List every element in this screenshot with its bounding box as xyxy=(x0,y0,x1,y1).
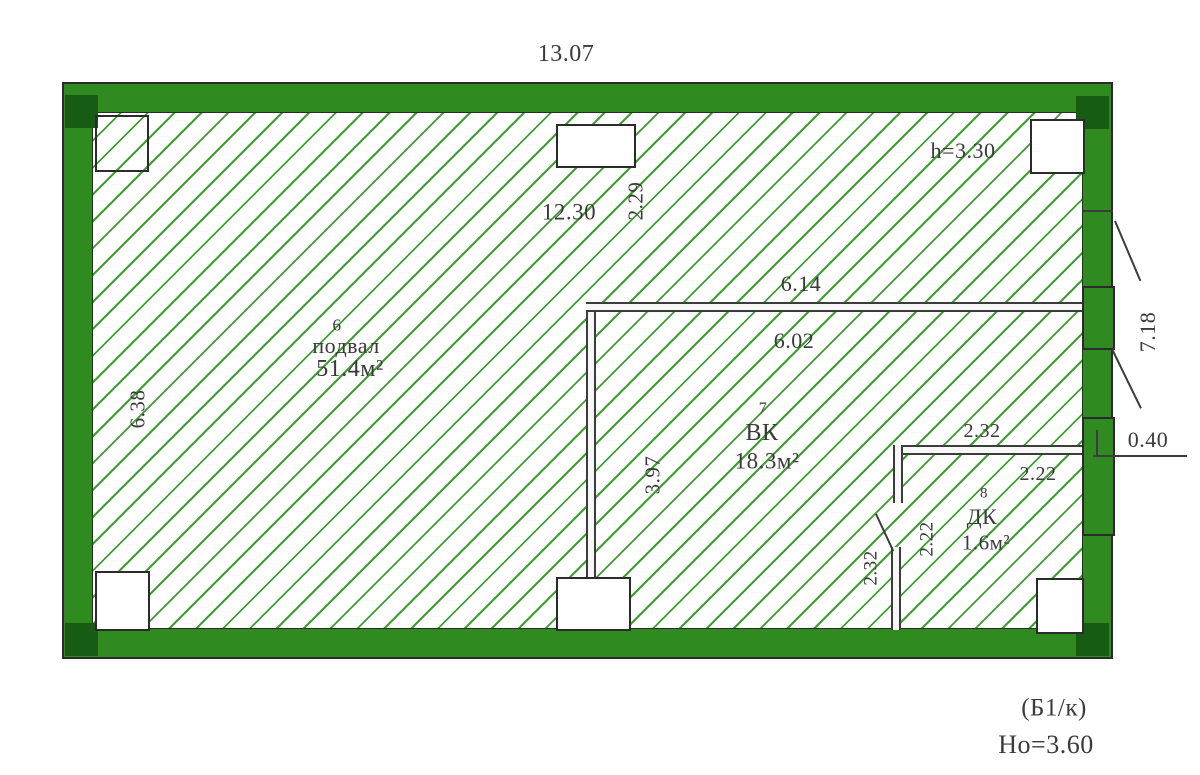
pilaster-top-left xyxy=(95,115,149,172)
dim-right-outer: 7.18 xyxy=(1137,312,1159,353)
partition-dk-left-upper xyxy=(893,445,903,503)
partition-dk-top xyxy=(893,445,1083,455)
dim-vk-top-outer: 6.14 xyxy=(781,273,822,295)
dim-ceiling-height: h=3.30 xyxy=(931,140,996,162)
dim-dk-top-outer: 2.32 xyxy=(964,421,1001,441)
dim-dk-left-outer: 2.32 xyxy=(862,550,881,585)
room-vk-name: ВК xyxy=(745,421,778,445)
pilaster-bottom-middle xyxy=(556,577,631,631)
leader-line-040 xyxy=(1111,349,1142,409)
wall-corner-bottom-left xyxy=(65,623,98,656)
pilaster-bottom-right xyxy=(1036,578,1084,634)
partition-vk-left xyxy=(586,302,596,577)
room-vk-area: 18.3м² xyxy=(735,450,800,473)
partition-dk-left-lower xyxy=(891,547,901,630)
dim-overall-width: 13.07 xyxy=(538,42,595,66)
room-dk-name: ДК xyxy=(967,506,998,528)
section-label: (Б1/к) xyxy=(1021,696,1087,721)
dim-dk-top-inner: 2.22 xyxy=(1020,464,1057,484)
floor-height-label: Но=3.60 xyxy=(998,732,1093,758)
room-dk-number: 8 xyxy=(980,487,988,502)
dim-top-inner: 12.30 xyxy=(542,201,596,224)
wall-corner-top-left xyxy=(65,95,98,128)
floor-plan xyxy=(62,82,1113,659)
dim-dk-left-inner: 2.22 xyxy=(918,521,937,556)
dim-wall-thickness: 0.40 xyxy=(1128,429,1169,451)
dim-vk-top-inner: 6.02 xyxy=(774,330,815,352)
right-wall-opening-lower xyxy=(1082,417,1115,536)
room-podval-number: 6 xyxy=(333,317,342,334)
dim-left-inner: 6.38 xyxy=(128,390,149,429)
pilaster-bottom-left xyxy=(95,571,150,631)
room-vk-number: 7 xyxy=(759,401,768,417)
partition-vk-top xyxy=(586,302,1083,312)
leader-line-718 xyxy=(1114,221,1141,282)
room-podval-area: 51.4м² xyxy=(316,357,383,381)
wall-thickness-dim-line xyxy=(1093,455,1187,457)
floor-plan-canvas: 13.07 h=3.30 12.30 2.29 6.1 xyxy=(0,0,1200,775)
right-wall-opening-upper xyxy=(1082,286,1115,350)
wall-thickness-tick xyxy=(1096,430,1098,456)
dim-top-inner-vert: 2.29 xyxy=(626,182,647,221)
room-podval-name: подвал xyxy=(312,335,379,357)
pilaster-top-middle xyxy=(556,124,636,168)
dim-vk-left: 3.97 xyxy=(643,456,664,495)
pilaster-top-right xyxy=(1030,119,1085,174)
room-dk-area: 1.6м² xyxy=(962,533,1010,554)
right-wall-step-line xyxy=(1083,210,1113,212)
